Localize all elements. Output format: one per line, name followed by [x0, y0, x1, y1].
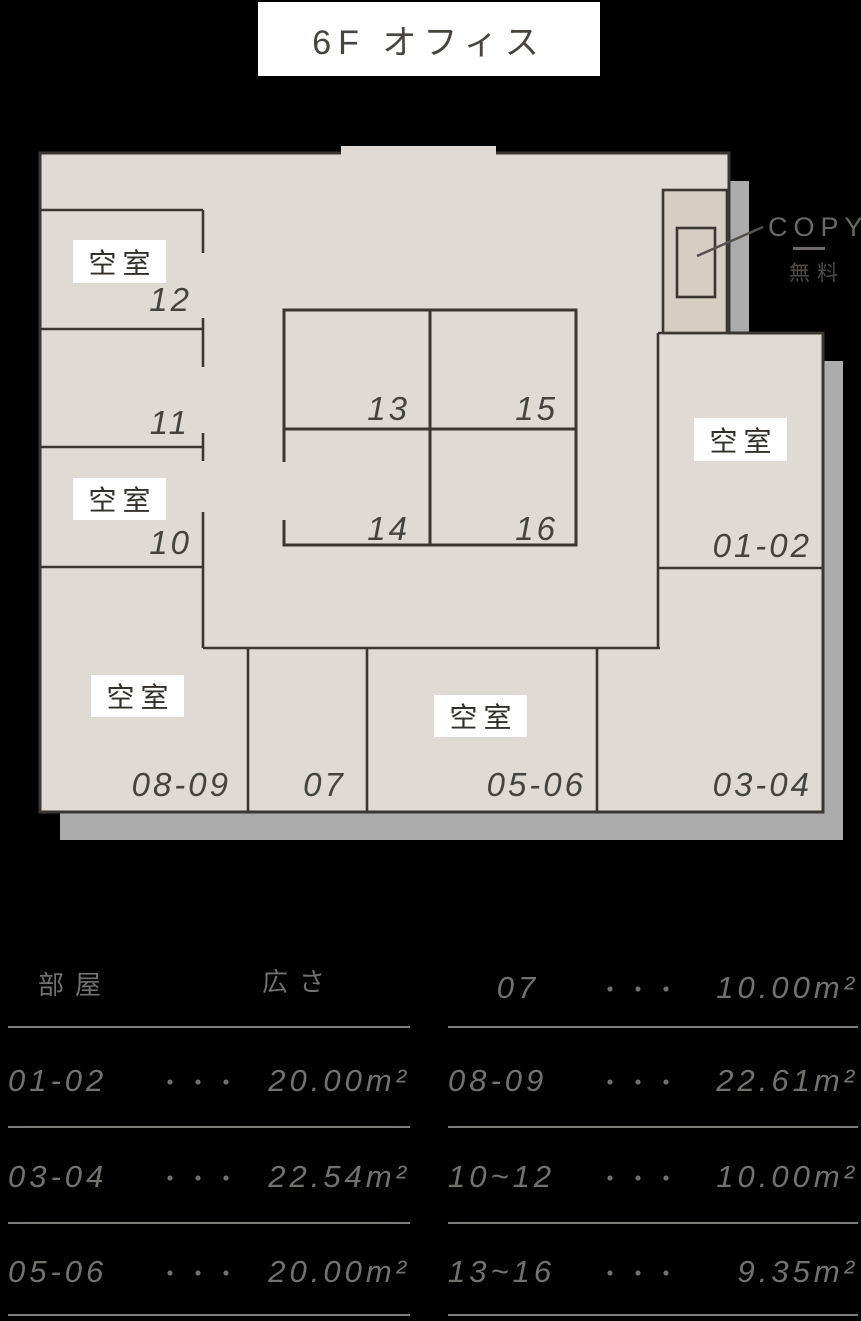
vacant-tag-room0506: 空室 — [434, 695, 527, 737]
legend-divider — [448, 1026, 858, 1028]
vacant-tag-room0809: 空室 — [91, 675, 184, 717]
legend-room-id: 08-09 — [448, 1063, 588, 1099]
vacant-tag-room10: 空室 — [73, 478, 166, 520]
legend-row-1316: 13~16 ・・・ 9.35m² — [448, 1254, 858, 1290]
room-number-0506: 05-06 — [436, 766, 586, 804]
legend-dots: ・・・ — [598, 1063, 682, 1098]
copy-caption-underline — [793, 247, 825, 250]
legend-divider — [8, 1314, 410, 1316]
room-number-16: 16 — [458, 510, 558, 548]
legend-room-id: 05-06 — [8, 1254, 148, 1290]
vacant-label: 空室 — [82, 242, 156, 282]
legend-dots: ・・・ — [598, 970, 682, 1005]
legend-divider — [8, 1026, 410, 1028]
legend-dots: ・・・ — [158, 1159, 242, 1194]
legend-left-column: 部屋 広さ 01-02 ・・・ 20.00m² 03-04 ・・・ 22.54m… — [8, 930, 410, 1321]
legend-room-id: 01-02 — [8, 1063, 148, 1099]
copy-machine — [677, 228, 715, 297]
room-number-07: 07 — [277, 766, 372, 804]
room-number-0809: 08-09 — [81, 766, 231, 804]
legend-dots: ・・・ — [598, 1254, 682, 1289]
legend-room-size: 22.61m² — [716, 1063, 858, 1099]
legend-row-0809: 08-09 ・・・ 22.61m² — [448, 1063, 858, 1099]
vacant-label: 空室 — [443, 696, 517, 736]
legend-right-column: 07 ・・・ 10.00m² 08-09 ・・・ 22.61m² 10~12 ・… — [448, 930, 858, 1321]
legend-header-size: 広さ — [262, 962, 336, 999]
legend-dots: ・・・ — [598, 1159, 682, 1194]
legend-room-id: 10~12 — [448, 1159, 588, 1195]
vacant-tag-room0102: 空室 — [694, 418, 787, 461]
legend-room-id: 07 — [448, 970, 588, 1006]
copy-caption: COPY — [768, 212, 861, 243]
legend-room-size: 9.35m² — [738, 1254, 858, 1290]
legend-row-1012: 10~12 ・・・ 10.00m² — [448, 1159, 858, 1195]
legend-divider — [8, 1222, 410, 1224]
room-number-14: 14 — [310, 510, 410, 548]
legend-room-id: 13~16 — [448, 1254, 588, 1290]
entrance-opening — [341, 146, 496, 157]
room-number-10: 10 — [100, 524, 192, 562]
legend-divider — [448, 1126, 858, 1128]
legend-room-size: 20.00m² — [268, 1063, 410, 1099]
legend-divider — [448, 1222, 858, 1224]
legend-room-id: 03-04 — [8, 1159, 148, 1195]
vacant-label: 空室 — [82, 479, 156, 519]
legend-divider — [8, 1126, 410, 1128]
legend-row-0304: 03-04 ・・・ 22.54m² — [8, 1159, 410, 1195]
legend-room-size: 22.54m² — [268, 1159, 410, 1195]
vacant-tag-room12: 空室 — [73, 240, 166, 283]
legend-dots: ・・・ — [158, 1063, 242, 1098]
vacant-label: 空室 — [100, 676, 174, 716]
room-number-13: 13 — [310, 390, 410, 428]
room-number-12: 12 — [100, 281, 192, 319]
room-number-0102: 01-02 — [662, 527, 812, 565]
legend-room-size: 20.00m² — [268, 1254, 410, 1290]
legend-row-0506: 05-06 ・・・ 20.00m² — [8, 1254, 410, 1290]
legend-dots: ・・・ — [158, 1254, 242, 1289]
legend-room-size: 10.00m² — [716, 970, 858, 1006]
copy-free-note: 無料 — [789, 257, 845, 287]
room-number-0304: 03-04 — [662, 766, 812, 804]
legend-room-size: 10.00m² — [716, 1159, 858, 1195]
legend-row-0102: 01-02 ・・・ 20.00m² — [8, 1063, 410, 1099]
room-number-15: 15 — [458, 390, 558, 428]
legend-row-07: 07 ・・・ 10.00m² — [448, 970, 858, 1006]
room-number-11: 11 — [100, 404, 190, 442]
vacant-label: 空室 — [703, 420, 777, 460]
legend-header-room: 部屋 — [38, 965, 112, 1002]
legend-divider — [448, 1314, 858, 1316]
